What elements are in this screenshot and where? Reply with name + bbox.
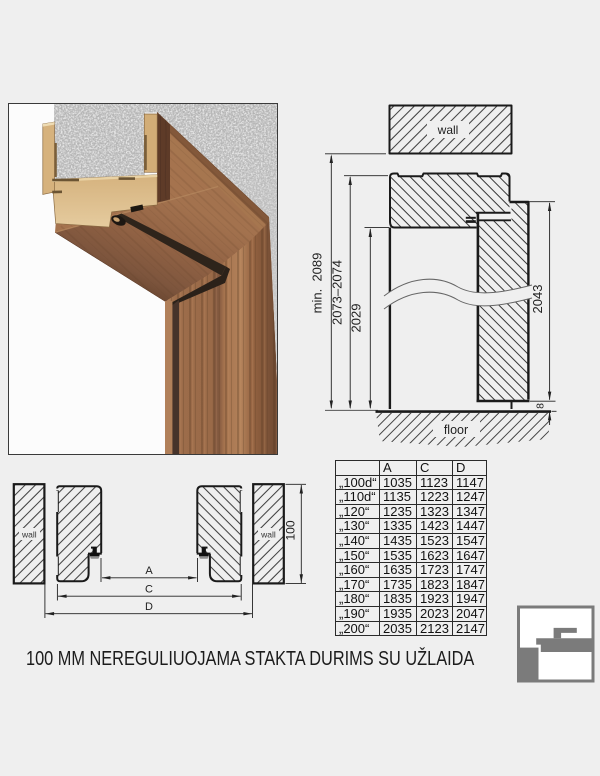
svg-text:8: 8 — [535, 403, 547, 409]
svg-text:2043: 2043 — [530, 285, 545, 314]
svg-text:100: 100 — [284, 520, 298, 540]
svg-text:C: C — [145, 584, 153, 596]
svg-text:min. 2089: min. 2089 — [309, 253, 324, 314]
svg-text:A: A — [145, 565, 153, 577]
svg-text:wall: wall — [437, 123, 459, 137]
svg-text:wall: wall — [260, 530, 276, 540]
svg-text:wall: wall — [21, 530, 37, 540]
svg-text:D: D — [145, 601, 153, 613]
svg-text:floor: floor — [444, 423, 468, 437]
svg-text:2073–2074: 2073–2074 — [330, 260, 345, 325]
svg-text:2029: 2029 — [349, 304, 364, 333]
